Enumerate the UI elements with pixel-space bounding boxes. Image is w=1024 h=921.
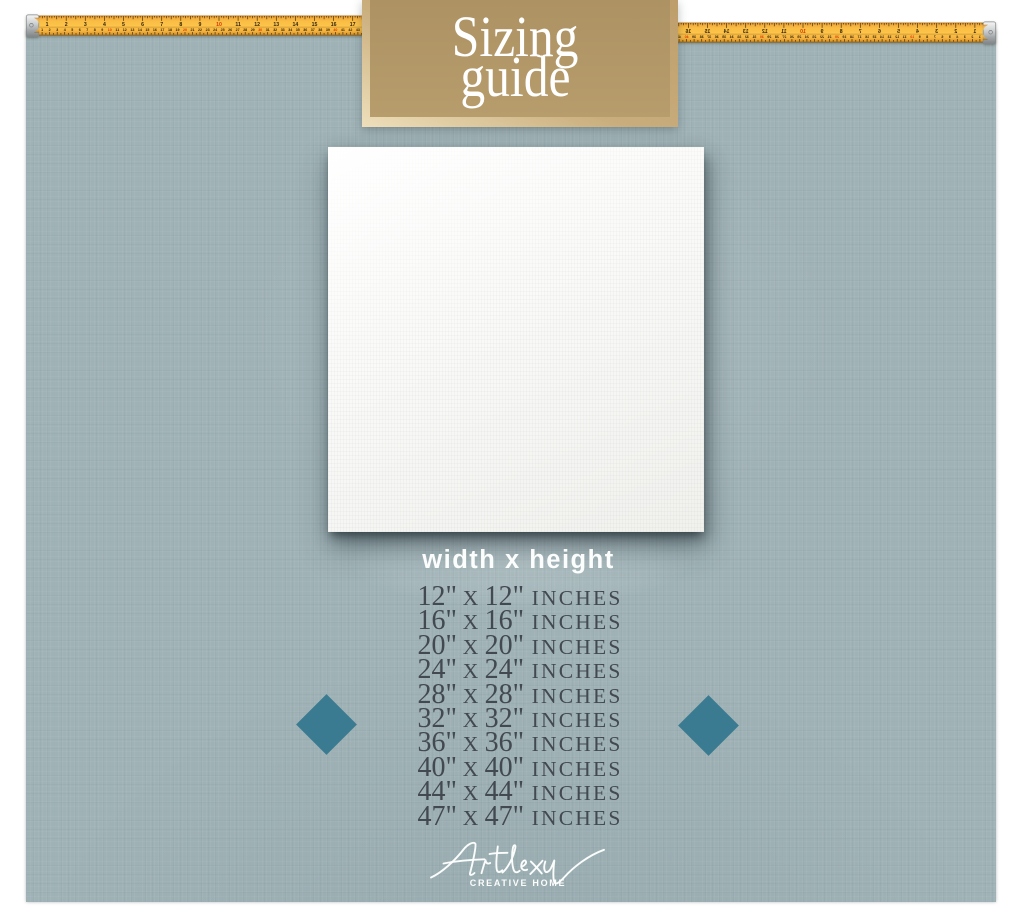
svg-text:10: 10 — [910, 35, 914, 39]
svg-text:18: 18 — [850, 35, 854, 39]
svg-text:24: 24 — [213, 28, 217, 32]
svg-text:27: 27 — [236, 28, 240, 32]
svg-text:19: 19 — [176, 28, 180, 32]
svg-text:16: 16 — [685, 28, 691, 34]
svg-text:13: 13 — [273, 21, 279, 27]
svg-text:17: 17 — [160, 28, 164, 32]
svg-text:14: 14 — [724, 28, 730, 34]
svg-text:9: 9 — [821, 28, 824, 34]
svg-text:18: 18 — [168, 28, 172, 32]
svg-text:28: 28 — [243, 28, 247, 32]
svg-text:4: 4 — [64, 28, 66, 32]
svg-text:3: 3 — [935, 28, 938, 34]
svg-text:23: 23 — [812, 35, 816, 39]
svg-text:6: 6 — [878, 28, 881, 34]
svg-text:3: 3 — [56, 28, 58, 32]
svg-text:7: 7 — [859, 28, 862, 34]
svg-text:13: 13 — [130, 28, 134, 32]
svg-text:35: 35 — [722, 35, 726, 39]
svg-text:42: 42 — [348, 28, 352, 32]
svg-text:11: 11 — [235, 21, 241, 27]
svg-text:10: 10 — [216, 21, 222, 27]
svg-text:5: 5 — [897, 28, 900, 34]
svg-text:8: 8 — [94, 28, 96, 32]
svg-text:1: 1 — [46, 21, 49, 27]
svg-text:37: 37 — [311, 28, 315, 32]
svg-text:26: 26 — [790, 35, 794, 39]
svg-text:5: 5 — [71, 28, 73, 32]
svg-text:15: 15 — [312, 21, 318, 27]
svg-text:28: 28 — [775, 35, 779, 39]
svg-text:7: 7 — [934, 35, 936, 39]
svg-text:29: 29 — [251, 28, 255, 32]
svg-text:25: 25 — [797, 35, 801, 39]
svg-text:36: 36 — [715, 35, 719, 39]
svg-text:24: 24 — [805, 35, 809, 39]
svg-text:40: 40 — [333, 28, 337, 32]
svg-text:16: 16 — [331, 21, 337, 27]
svg-text:40: 40 — [685, 35, 689, 39]
svg-text:11: 11 — [781, 28, 787, 34]
svg-text:31: 31 — [266, 28, 270, 32]
svg-text:5: 5 — [122, 21, 125, 27]
svg-text:6: 6 — [941, 35, 943, 39]
svg-text:39: 39 — [326, 28, 330, 32]
svg-text:43: 43 — [356, 28, 360, 32]
svg-text:20: 20 — [183, 28, 187, 32]
svg-text:32: 32 — [273, 28, 277, 32]
svg-text:22: 22 — [820, 35, 824, 39]
svg-text:4: 4 — [956, 35, 958, 39]
svg-text:30: 30 — [258, 28, 262, 32]
svg-text:23: 23 — [206, 28, 210, 32]
svg-text:33: 33 — [281, 28, 285, 32]
svg-text:2: 2 — [49, 28, 51, 32]
svg-text:8: 8 — [179, 21, 182, 27]
svg-text:30: 30 — [760, 35, 764, 39]
svg-text:33: 33 — [737, 35, 741, 39]
svg-text:16: 16 — [865, 35, 869, 39]
svg-text:15: 15 — [873, 35, 877, 39]
svg-text:2: 2 — [65, 21, 68, 27]
svg-text:16: 16 — [153, 28, 157, 32]
svg-text:12: 12 — [254, 21, 260, 27]
svg-text:35: 35 — [296, 28, 300, 32]
svg-text:17: 17 — [350, 21, 356, 27]
svg-text:3: 3 — [84, 21, 87, 27]
svg-text:39: 39 — [692, 35, 696, 39]
svg-text:13: 13 — [743, 28, 749, 34]
svg-text:12: 12 — [762, 28, 768, 34]
svg-text:31: 31 — [752, 35, 756, 39]
svg-text:6: 6 — [141, 21, 144, 27]
svg-text:2: 2 — [971, 35, 973, 39]
svg-text:36: 36 — [303, 28, 307, 32]
svg-text:9: 9 — [198, 21, 201, 27]
svg-text:27: 27 — [782, 35, 786, 39]
svg-text:38: 38 — [318, 28, 322, 32]
svg-text:4: 4 — [103, 21, 106, 27]
svg-text:29: 29 — [767, 35, 771, 39]
svg-text:19: 19 — [843, 35, 847, 39]
svg-text:CREATIVE HOME: CREATIVE HOME — [470, 878, 566, 888]
svg-text:20: 20 — [835, 35, 839, 39]
svg-text:8: 8 — [926, 35, 928, 39]
svg-text:9: 9 — [919, 35, 921, 39]
svg-text:15: 15 — [145, 28, 149, 32]
svg-text:12: 12 — [123, 28, 127, 32]
svg-text:14: 14 — [138, 28, 142, 32]
svg-text:4: 4 — [916, 28, 919, 34]
svg-text:15: 15 — [705, 28, 711, 34]
svg-text:14: 14 — [293, 21, 299, 27]
svg-text:5: 5 — [949, 35, 951, 39]
svg-text:10: 10 — [108, 28, 112, 32]
svg-text:11: 11 — [115, 28, 119, 32]
svg-text:37: 37 — [707, 35, 711, 39]
svg-text:10: 10 — [800, 28, 806, 34]
svg-text:26: 26 — [228, 28, 232, 32]
svg-text:1: 1 — [973, 28, 976, 34]
svg-text:6: 6 — [79, 28, 81, 32]
svg-text:7: 7 — [160, 21, 163, 27]
svg-text:38: 38 — [700, 35, 704, 39]
svg-text:11: 11 — [903, 35, 907, 39]
svg-text:9: 9 — [101, 28, 103, 32]
svg-text:41: 41 — [341, 28, 345, 32]
svg-text:13: 13 — [888, 35, 892, 39]
svg-text:1: 1 — [979, 35, 981, 39]
svg-text:2: 2 — [954, 28, 957, 34]
svg-text:7: 7 — [86, 28, 88, 32]
svg-text:1: 1 — [41, 28, 43, 32]
svg-text:25: 25 — [221, 28, 225, 32]
svg-text:3: 3 — [964, 35, 966, 39]
svg-text:12: 12 — [895, 35, 899, 39]
svg-text:34: 34 — [288, 28, 292, 32]
svg-text:21: 21 — [191, 28, 195, 32]
svg-text:14: 14 — [880, 35, 884, 39]
svg-text:17: 17 — [858, 35, 862, 39]
svg-text:21: 21 — [828, 35, 832, 39]
svg-text:8: 8 — [840, 28, 843, 34]
svg-text:22: 22 — [198, 28, 202, 32]
svg-text:34: 34 — [730, 35, 734, 39]
svg-text:32: 32 — [745, 35, 749, 39]
